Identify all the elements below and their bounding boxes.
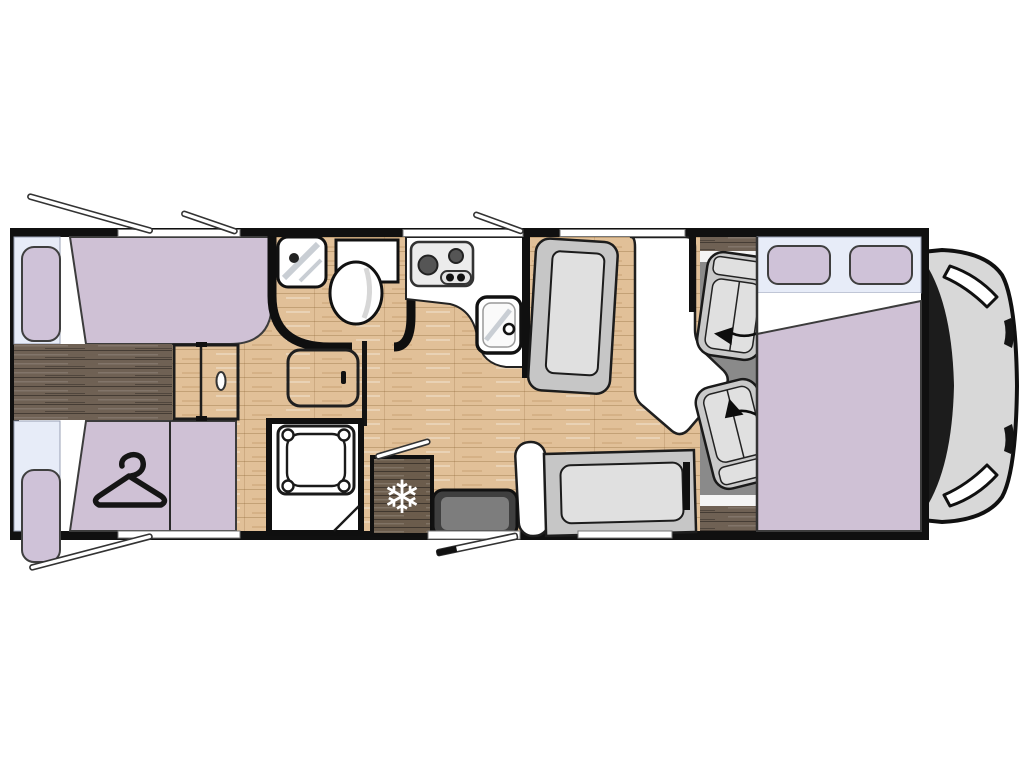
duvet	[757, 301, 921, 531]
cab-partition-bottom	[683, 462, 690, 510]
cab-trim-white-bottom	[700, 495, 758, 506]
bathroom-door	[362, 341, 367, 426]
sink-drain	[289, 253, 299, 263]
cabinet-handle	[341, 371, 346, 384]
door-handle	[217, 372, 226, 390]
window-kitchen-top	[403, 230, 523, 237]
bathroom-corner-sink	[278, 237, 326, 287]
rear-bed-bottom-mattress	[70, 421, 236, 531]
cab-trim-wood-top	[700, 237, 758, 251]
motorhome-floorplan: ❄	[0, 0, 1024, 768]
window-lounge-bottom	[578, 531, 672, 538]
shower	[269, 421, 361, 533]
window-dinette-top	[560, 230, 685, 237]
pillow-right	[850, 246, 912, 284]
drop-down-bed	[757, 237, 921, 531]
rear-bench-seat	[544, 450, 696, 536]
faucet	[504, 324, 514, 334]
rear-bed-top-mattress	[70, 237, 272, 344]
vehicle-front	[922, 250, 1017, 522]
pillow-left	[768, 246, 830, 284]
cab-trim-wood-bottom	[700, 506, 758, 531]
stove-burner-small	[449, 249, 463, 263]
center-step-chest	[14, 344, 172, 420]
stove-burner-large	[419, 256, 438, 275]
kitchen-sink	[477, 297, 521, 353]
window-flap-rear-top-long	[27, 194, 152, 234]
stove-knob-panel	[441, 271, 471, 284]
stove	[411, 242, 473, 286]
cab-partition-top	[689, 232, 696, 312]
pillow-bottom-bed	[22, 470, 60, 562]
pillow-top-bed	[22, 247, 60, 341]
refrigerator: ❄	[372, 457, 432, 535]
floorplan-canvas: ❄	[0, 0, 1024, 768]
fridge-snowflake-icon: ❄	[383, 470, 422, 524]
forward-bench-seat	[527, 238, 618, 395]
window-rear-top	[118, 230, 240, 237]
